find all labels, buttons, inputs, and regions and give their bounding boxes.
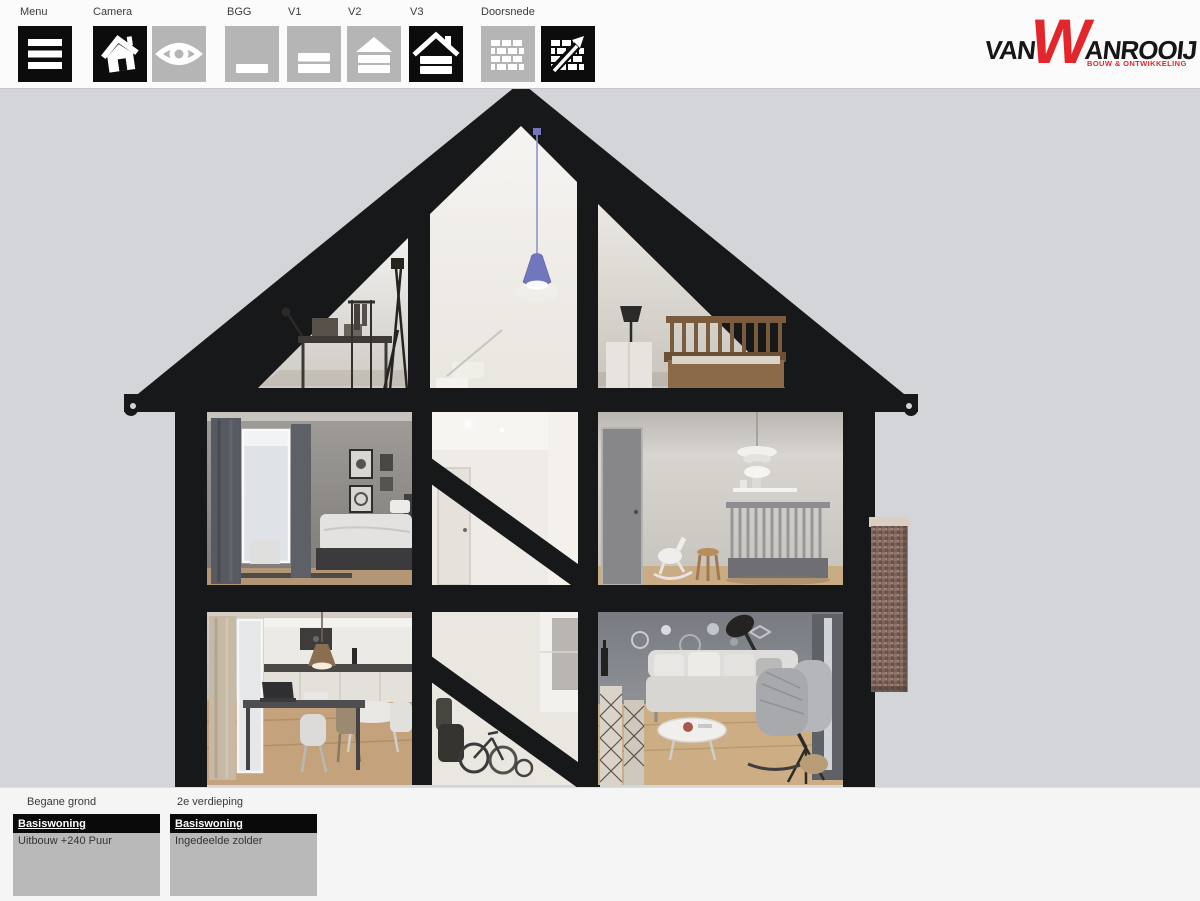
kitchen-office	[207, 612, 412, 785]
attic-mullion-left	[408, 216, 430, 394]
section-group-label: Doorsnede	[481, 6, 535, 18]
panel-label-begane-grond: Begane grond	[27, 796, 96, 808]
ground-mullion-right	[578, 612, 598, 785]
middle-mullion-left	[412, 412, 432, 585]
floor-bgg-icon	[225, 26, 279, 82]
middle-mullion-right	[578, 412, 598, 585]
bricks-cut-arrow-icon	[541, 26, 595, 82]
floor-v2-button[interactable]	[347, 26, 401, 82]
option-uitbouw[interactable]: Uitbouw +240 Puur	[13, 833, 160, 848]
brick-pier	[869, 517, 910, 692]
floor-v3-icon	[409, 26, 463, 82]
house-icon	[93, 26, 147, 82]
attic-floor-slab	[150, 388, 874, 412]
eye-icon	[152, 26, 206, 82]
section-plain-button[interactable]	[481, 26, 535, 82]
camera-group-label: Camera	[93, 6, 132, 18]
floor-v2-label: V2	[348, 6, 361, 18]
bedroom	[207, 412, 412, 585]
stairwell-ground	[420, 612, 600, 800]
menu-button[interactable]	[18, 26, 72, 82]
house-cross-section-canvas[interactable]	[0, 88, 1200, 800]
floor-v2-icon	[347, 26, 401, 82]
menu-group-label: Menu	[20, 6, 48, 18]
floor-bgg-label: BGG	[227, 6, 251, 18]
begane-grond-panel: Basiswoning Uitbouw +240 Puur	[13, 814, 160, 896]
left-exterior-wall	[175, 398, 207, 787]
camera-house-view-button[interactable]	[93, 26, 147, 82]
hamburger-icon	[18, 26, 72, 82]
floor-v1-button[interactable]	[287, 26, 341, 82]
pouf	[800, 754, 828, 774]
logo-w-initial: W	[1025, 11, 1096, 74]
logo-tagline: BOUW & ONTWIKKELING	[1087, 60, 1187, 68]
bricks-icon	[481, 26, 535, 82]
floor-v1-label: V1	[288, 6, 301, 18]
desk-lamp	[282, 308, 291, 317]
floor-v3-label: V3	[410, 6, 423, 18]
option-basiswoning-v2[interactable]: Basiswoning	[170, 814, 317, 833]
camera-eye-view-button[interactable]	[152, 26, 206, 82]
floor-v1-icon	[287, 26, 341, 82]
stairwell-middle	[420, 412, 600, 606]
options-footer: Begane grond 2e verdieping Basiswoning U…	[0, 787, 1200, 901]
floor-v3-button[interactable]	[409, 26, 463, 82]
right-exterior-wall	[843, 398, 875, 787]
attic-mullion-right	[577, 182, 598, 394]
tweede-verdieping-panel: Basiswoning Ingedeelde zolder	[170, 814, 317, 896]
van-wanrooij-logo: VAN W ANROOIJ BOUW & ONTWIKKELING	[985, 16, 1195, 74]
office-chair	[300, 714, 326, 746]
section-cut-button[interactable]	[541, 26, 595, 82]
middle-floor-slab	[175, 585, 875, 612]
floor-bgg-button[interactable]	[225, 26, 279, 82]
nursery	[598, 412, 843, 585]
nursery-door	[602, 428, 642, 585]
panel-label-2e-verdieping: 2e verdieping	[177, 796, 243, 808]
option-ingedeelde-zolder[interactable]: Ingedeelde zolder	[170, 833, 317, 848]
living-room	[598, 610, 843, 785]
option-basiswoning-bg[interactable]: Basiswoning	[13, 814, 160, 833]
ground-mullion-left	[412, 612, 432, 785]
